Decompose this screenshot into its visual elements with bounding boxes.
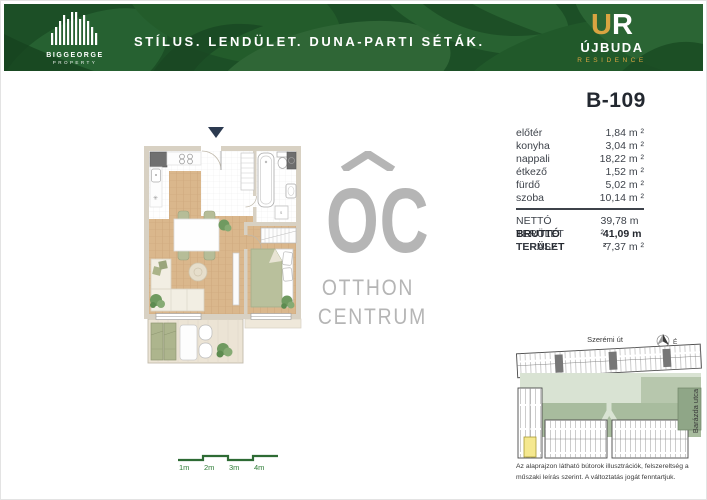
watermark-centrum: CENTRUM [318, 304, 418, 330]
oc-monogram: OC [326, 176, 410, 266]
toilet [277, 152, 288, 169]
site-plan: Szerémi út É [513, 333, 705, 463]
svg-text:3m: 3m [229, 463, 239, 472]
terrace [148, 319, 243, 363]
room-label: előtér [516, 127, 542, 140]
brochure-page: BIGGEORGE PROPERTY STÍLUS. LENDÜLET. DUN… [0, 0, 707, 500]
residence-subtitle: RESIDENCE [562, 57, 662, 64]
tv-sideboard [233, 253, 239, 305]
total-label: TERASZ [516, 241, 557, 254]
ujbuda-residence-logo: UR ÚJBUDA RESIDENCE [562, 10, 662, 64]
roof-chevron-icon [339, 151, 397, 171]
biggeorge-name: BIGGEORGE [20, 52, 130, 59]
room-area: 5,02 m ² [605, 179, 644, 192]
total-label: NETTÓ TERÜLET [516, 215, 601, 228]
street-label-top: Szerémi út [587, 335, 624, 344]
room-label: konyha [516, 140, 550, 153]
biggeorge-subtitle: PROPERTY [20, 60, 130, 65]
disclaimer-line: műszaki leírás szerint. A változtatás jo… [516, 473, 707, 484]
ur-monogram: UR [562, 10, 662, 40]
table-row: BRUTTÓ TERÜLET41,09 m ² [516, 228, 644, 241]
header-banner: BIGGEORGE PROPERTY STÍLUS. LENDÜLET. DUN… [4, 4, 703, 71]
table-row: fürdő5,02 m ² [516, 179, 644, 192]
totals-divider [516, 208, 644, 210]
table-row: előtér1,84 m ² [516, 127, 644, 140]
room-area-table: előtér1,84 m ² konyha3,04 m ² nappali18,… [516, 127, 644, 205]
svg-text:É: É [673, 337, 678, 346]
room-area: 18,22 m ² [600, 153, 644, 166]
table-row: étkező1,52 m ² [516, 166, 644, 179]
north-building [516, 344, 701, 378]
otthon-centrum-watermark: OC OTTHON CENTRUM [311, 151, 425, 330]
table-row: NETTÓ TERÜLET39,78 m ² [516, 215, 644, 228]
unit-id-title: B-109 [546, 89, 686, 113]
watermark-otthon: OTTHON [318, 275, 418, 301]
campaign-tagline: STÍLUS. LENDÜLET. DUNA-PARTI SÉTÁK. [134, 34, 485, 49]
total-value: 39,78 m ² [601, 215, 645, 228]
svg-text:✳: ✳ [153, 195, 158, 202]
wardrobe [261, 228, 296, 243]
room-label: szoba [516, 192, 544, 205]
room-area: 1,52 m ² [605, 166, 644, 179]
hall-closet [241, 153, 254, 190]
ujbuda-name: ÚJBUDA [562, 40, 662, 55]
table-row: nappali18,22 m ² [516, 153, 644, 166]
south-building-2 [612, 420, 688, 458]
washing-machine [287, 152, 296, 169]
disclaimer-text: Az alaprajzon látható bútorok illusztrác… [516, 462, 707, 483]
dining-table [174, 219, 219, 251]
svg-text:4m: 4m [254, 463, 264, 472]
table-row: szoba10,14 m ² [516, 192, 644, 205]
disclaimer-line: Az alaprajzon látható bútorok illusztrác… [516, 462, 707, 473]
room-area: 10,14 m ² [600, 192, 644, 205]
total-value: 41,09 m ² [603, 228, 644, 241]
bathroom-sink [286, 184, 296, 198]
coffee-table [189, 263, 207, 281]
highlighted-unit-marker [524, 437, 536, 457]
total-value: 7,37 m ² [605, 241, 644, 254]
room-label: étkező [516, 166, 547, 179]
biggeorge-towers-icon [49, 11, 101, 45]
biggeorge-logo: BIGGEORGE PROPERTY [20, 11, 130, 65]
total-label: BRUTTÓ TERÜLET [516, 228, 603, 241]
scale-bar: 1m 2m 3m 4m [176, 451, 286, 473]
room-area: 3,04 m ² [605, 140, 644, 153]
floor-plan: ✳ [141, 121, 311, 436]
svg-text:1m: 1m [179, 463, 189, 472]
room-area: 1,84 m ² [605, 127, 644, 140]
south-building-1 [545, 420, 607, 458]
terrace-table [180, 325, 197, 360]
entrance-arrow-icon [208, 127, 224, 138]
room-label: fürdő [516, 179, 540, 192]
totals-table: NETTÓ TERÜLET39,78 m ² BRUTTÓ TERÜLET41,… [516, 215, 644, 254]
svg-text:2m: 2m [204, 463, 214, 472]
table-row: TERASZ7,37 m ² [516, 241, 644, 254]
room-label: nappali [516, 153, 550, 166]
table-row: konyha3,04 m ² [516, 140, 644, 153]
fridge [150, 152, 167, 167]
street-label-right: Barázda utca [691, 388, 700, 433]
